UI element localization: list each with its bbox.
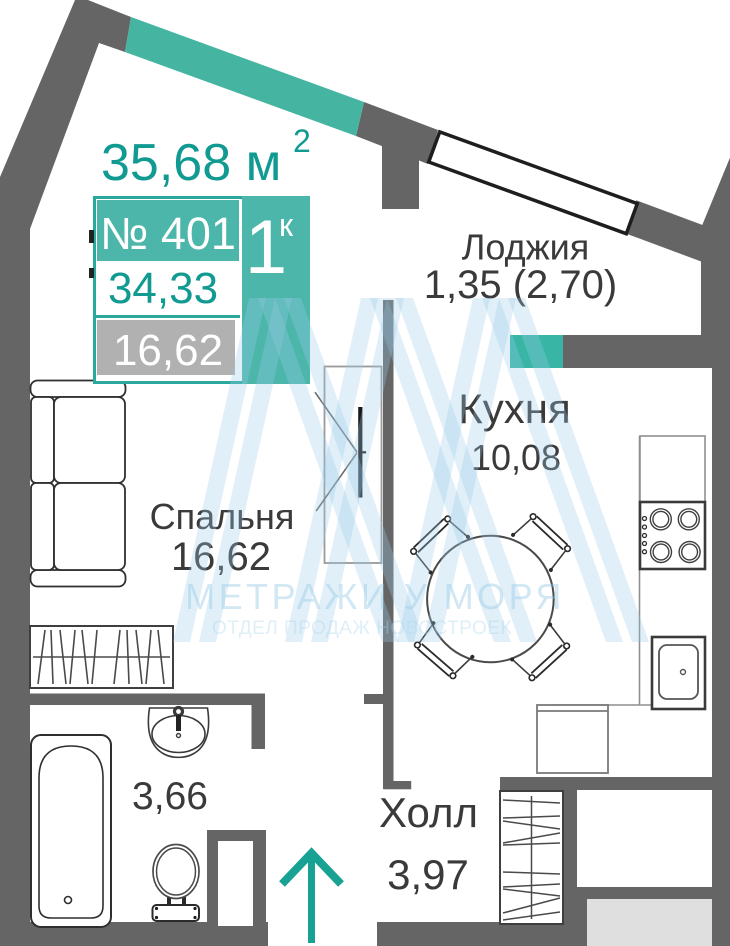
svg-text:№ 401: № 401	[100, 208, 236, 259]
svg-text:Спальня: Спальня	[150, 496, 295, 537]
svg-text:3,66: 3,66	[132, 775, 208, 818]
svg-text:к: к	[279, 207, 294, 243]
svg-text:ОТДЕЛ ПРОДАЖ НОВОСТРОЕК: ОТДЕЛ ПРОДАЖ НОВОСТРОЕК	[212, 618, 512, 639]
svg-text:Холл: Холл	[379, 789, 478, 836]
svg-text:34,33: 34,33	[108, 264, 218, 313]
svg-text:МЕТРАЖИ У МОРЯ: МЕТРАЖИ У МОРЯ	[185, 576, 565, 617]
svg-text:35,68 м: 35,68 м	[101, 134, 281, 192]
svg-text:Лоджия: Лоджия	[462, 227, 590, 268]
svg-text:3,97: 3,97	[387, 851, 469, 898]
svg-text:2: 2	[293, 123, 311, 159]
svg-text:16,62: 16,62	[113, 326, 223, 375]
